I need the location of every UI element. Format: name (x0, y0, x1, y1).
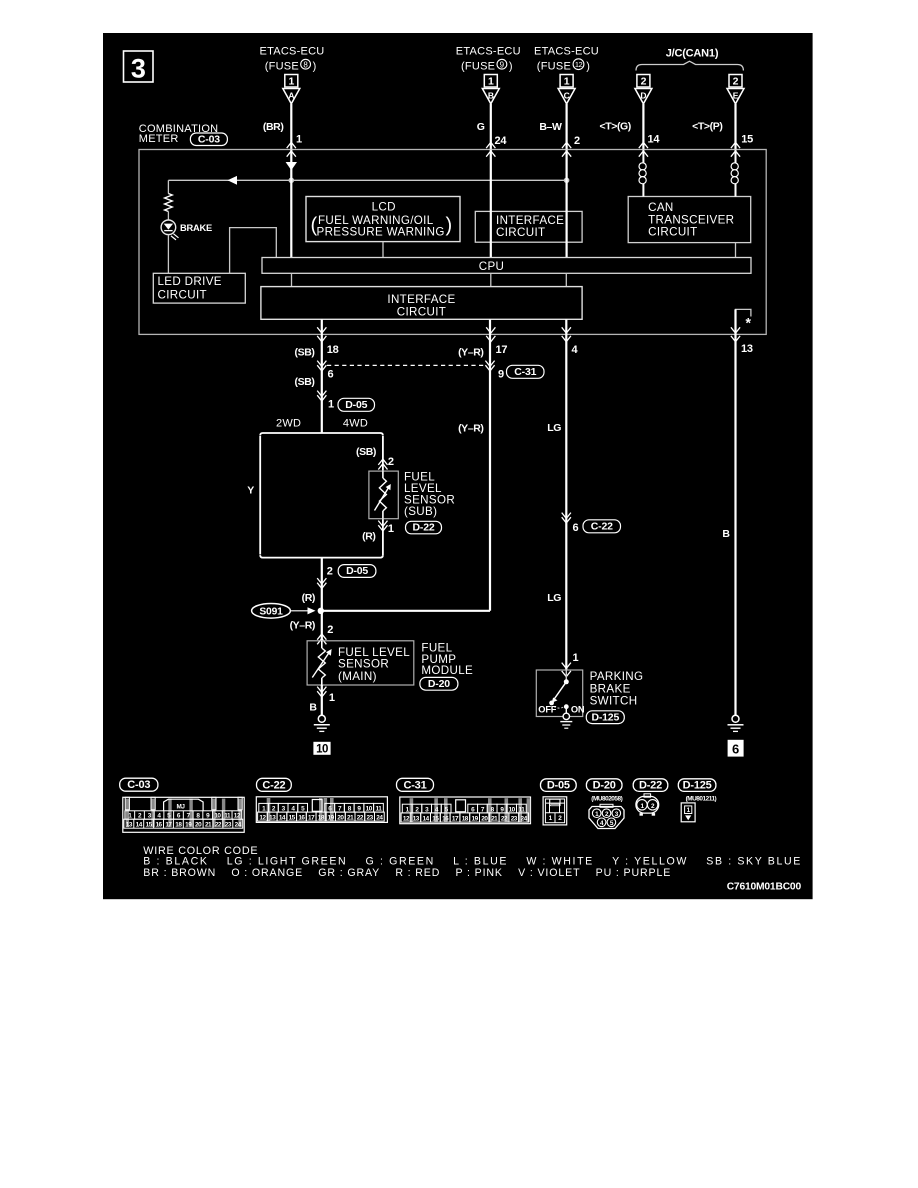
svg-text:6: 6 (573, 522, 579, 534)
svg-text:12: 12 (234, 813, 241, 820)
svg-text:12: 12 (575, 60, 583, 69)
svg-text:SENSOR: SENSOR (338, 657, 389, 670)
svg-text:C-03: C-03 (198, 133, 220, 145)
svg-text:(FUSE: (FUSE (537, 60, 571, 72)
svg-text:22: 22 (215, 821, 222, 828)
svg-text:23: 23 (225, 821, 232, 828)
svg-text:METER: METER (139, 133, 179, 145)
svg-text:OFF: OFF (538, 704, 557, 714)
svg-text:1: 1 (296, 134, 302, 146)
svg-text:): ) (586, 60, 590, 72)
svg-text:13: 13 (269, 815, 276, 822)
svg-text:1: 1 (329, 692, 335, 704)
svg-text:(: ( (311, 215, 318, 237)
svg-text:D-125: D-125 (591, 711, 619, 723)
svg-text:(FUSE: (FUSE (461, 60, 495, 72)
svg-text:INTERFACE: INTERFACE (387, 293, 455, 306)
svg-text:13: 13 (413, 816, 420, 823)
svg-text:C7610M01BC00: C7610M01BC00 (727, 882, 802, 893)
svg-text:24: 24 (235, 821, 242, 828)
svg-text:17: 17 (165, 821, 172, 828)
svg-text:): ) (509, 60, 513, 72)
svg-text:B–W: B–W (539, 121, 562, 133)
svg-text:14: 14 (648, 134, 661, 146)
svg-text:B: B (722, 528, 730, 540)
svg-text:D-22: D-22 (639, 779, 662, 791)
svg-text:B: B (309, 702, 317, 714)
svg-text:12: 12 (403, 816, 410, 823)
svg-text:1: 1 (328, 399, 334, 411)
svg-text:D-20: D-20 (593, 779, 616, 791)
svg-text:14: 14 (136, 821, 143, 828)
svg-text:15: 15 (741, 134, 753, 146)
svg-text:10: 10 (366, 806, 373, 813)
svg-text:C-22: C-22 (591, 521, 613, 533)
svg-text:14: 14 (279, 815, 286, 822)
svg-text:D-05: D-05 (547, 779, 570, 791)
svg-text:E: E (733, 90, 739, 100)
svg-text:2: 2 (574, 135, 580, 147)
svg-text:16: 16 (442, 816, 449, 823)
svg-text:INTERFACE: INTERFACE (496, 214, 564, 227)
svg-text:C-03: C-03 (127, 779, 150, 791)
svg-text:22: 22 (501, 816, 508, 823)
svg-text:Y: Y (247, 485, 254, 497)
svg-text:1: 1 (564, 76, 570, 88)
svg-text:11: 11 (376, 806, 383, 813)
svg-text:): ) (446, 215, 453, 237)
svg-text:4WD: 4WD (343, 418, 368, 430)
svg-text:CPU: CPU (479, 260, 505, 273)
svg-text:<T>(G): <T>(G) (599, 121, 630, 133)
svg-text:BR : BROWN O : ORANGE GR: BR : BROWN O : ORANGE GR : GRAY R : RED … (143, 867, 670, 879)
svg-text:(MAIN): (MAIN) (338, 670, 377, 683)
svg-text:13: 13 (741, 343, 753, 355)
svg-text:17: 17 (496, 344, 508, 356)
svg-text:LG: LG (547, 592, 561, 604)
svg-text:6: 6 (732, 742, 739, 757)
svg-text:C-31: C-31 (514, 366, 536, 378)
svg-text:17: 17 (308, 815, 315, 822)
svg-text:MJ: MJ (177, 804, 186, 811)
svg-text:ETACS-ECU: ETACS-ECU (260, 45, 325, 57)
svg-text:D-20: D-20 (428, 678, 450, 690)
svg-text:8: 8 (303, 60, 308, 69)
svg-text:16: 16 (155, 821, 162, 828)
svg-text:2: 2 (327, 565, 333, 577)
svg-text:15: 15 (289, 815, 296, 822)
svg-text:10: 10 (316, 744, 328, 756)
svg-text:23: 23 (367, 815, 374, 822)
svg-text:<T>(P): <T>(P) (692, 121, 722, 133)
svg-text:LG: LG (547, 422, 561, 434)
svg-text:CIRCUIT: CIRCUIT (648, 226, 697, 239)
svg-text:C: C (564, 90, 570, 100)
svg-text:(Y–R): (Y–R) (290, 619, 315, 631)
svg-text:10: 10 (509, 806, 516, 813)
svg-text:20: 20 (195, 821, 202, 828)
svg-text:15: 15 (432, 816, 439, 823)
svg-text:(MU801211): (MU801211) (686, 795, 717, 802)
svg-text:): ) (313, 60, 317, 72)
svg-text:18: 18 (318, 815, 325, 822)
svg-text:ON: ON (571, 704, 585, 714)
svg-text:(SUB): (SUB) (404, 505, 437, 518)
svg-text:(SB): (SB) (295, 376, 315, 388)
svg-text:(MU802058): (MU802058) (591, 795, 622, 802)
svg-text:17: 17 (452, 816, 459, 823)
svg-text:12: 12 (259, 815, 266, 822)
svg-text:LCD: LCD (372, 201, 396, 214)
svg-text:LED DRIVE: LED DRIVE (158, 275, 222, 288)
svg-text:11: 11 (224, 813, 231, 820)
svg-text:21: 21 (491, 816, 498, 823)
svg-text:D: D (640, 90, 646, 100)
svg-text:2: 2 (388, 456, 394, 468)
svg-text:D-05: D-05 (346, 565, 368, 577)
svg-text:15: 15 (146, 821, 153, 828)
svg-text:1: 1 (388, 523, 394, 535)
svg-text:3: 3 (131, 54, 146, 84)
svg-text:19: 19 (328, 815, 335, 822)
svg-text:SWITCH: SWITCH (590, 695, 638, 708)
svg-text:2: 2 (327, 624, 333, 636)
svg-text:MODULE: MODULE (421, 664, 473, 677)
svg-text:21: 21 (205, 821, 212, 828)
svg-text:2: 2 (733, 76, 739, 88)
svg-text:20: 20 (337, 815, 344, 822)
svg-text:24: 24 (495, 135, 508, 147)
svg-text:CIRCUIT: CIRCUIT (397, 305, 446, 318)
svg-text:ETACS-ECU: ETACS-ECU (456, 45, 521, 57)
svg-text:20: 20 (481, 816, 488, 823)
svg-text:24: 24 (520, 816, 527, 823)
svg-text:13: 13 (126, 821, 133, 828)
svg-text:D-05: D-05 (345, 399, 367, 411)
svg-text:24: 24 (376, 815, 383, 822)
svg-text:23: 23 (511, 816, 518, 823)
svg-text:J/C(CAN1): J/C(CAN1) (666, 48, 719, 60)
svg-text:C-31: C-31 (403, 779, 426, 791)
svg-text:9: 9 (498, 368, 504, 380)
svg-text:C-22: C-22 (262, 779, 285, 791)
svg-text:11: 11 (518, 806, 525, 813)
svg-text:10: 10 (214, 813, 221, 820)
svg-text:9: 9 (500, 60, 505, 69)
svg-text:(FUSE: (FUSE (265, 60, 299, 72)
svg-text:CIRCUIT: CIRCUIT (158, 288, 207, 301)
svg-text:21: 21 (347, 815, 354, 822)
svg-text:1: 1 (288, 76, 294, 88)
svg-text:PRESSURE WARNING: PRESSURE WARNING (317, 225, 445, 238)
svg-text:BRAKE: BRAKE (180, 223, 212, 233)
svg-text:16: 16 (298, 815, 305, 822)
svg-text:1: 1 (573, 652, 579, 664)
svg-text:TRANSCEIVER: TRANSCEIVER (648, 213, 734, 226)
svg-text:22: 22 (357, 815, 364, 822)
svg-text:(SB): (SB) (356, 446, 376, 458)
svg-text:S091: S091 (259, 607, 283, 618)
svg-text:CAN: CAN (648, 201, 674, 214)
svg-text:1: 1 (488, 76, 494, 88)
svg-text:2: 2 (641, 76, 647, 88)
svg-text:PARKING: PARKING (590, 670, 644, 683)
svg-text:(SB): (SB) (295, 347, 315, 359)
svg-text:A: A (288, 90, 294, 100)
svg-text:19: 19 (471, 816, 478, 823)
svg-text:18: 18 (462, 816, 469, 823)
svg-text:(R): (R) (302, 592, 315, 604)
svg-text:B: B (488, 90, 494, 100)
svg-text:(Y–R): (Y–R) (458, 347, 483, 359)
svg-text:6: 6 (328, 368, 334, 380)
svg-text:*: * (746, 315, 752, 331)
svg-text:BRAKE: BRAKE (590, 683, 631, 696)
svg-text:G: G (477, 121, 485, 133)
svg-text:14: 14 (422, 816, 429, 823)
svg-text:ETACS-ECU: ETACS-ECU (534, 45, 599, 57)
svg-text:D-125: D-125 (683, 779, 712, 791)
svg-text:18: 18 (175, 821, 182, 828)
svg-text:(Y–R): (Y–R) (458, 423, 483, 435)
svg-text:19: 19 (185, 821, 192, 828)
svg-text:D-22: D-22 (413, 522, 435, 534)
svg-text:(BR): (BR) (263, 121, 284, 133)
svg-text:(R): (R) (362, 531, 375, 543)
svg-text:2WD: 2WD (276, 418, 301, 430)
svg-text:18: 18 (327, 344, 339, 356)
svg-text:CIRCUIT: CIRCUIT (496, 226, 545, 239)
